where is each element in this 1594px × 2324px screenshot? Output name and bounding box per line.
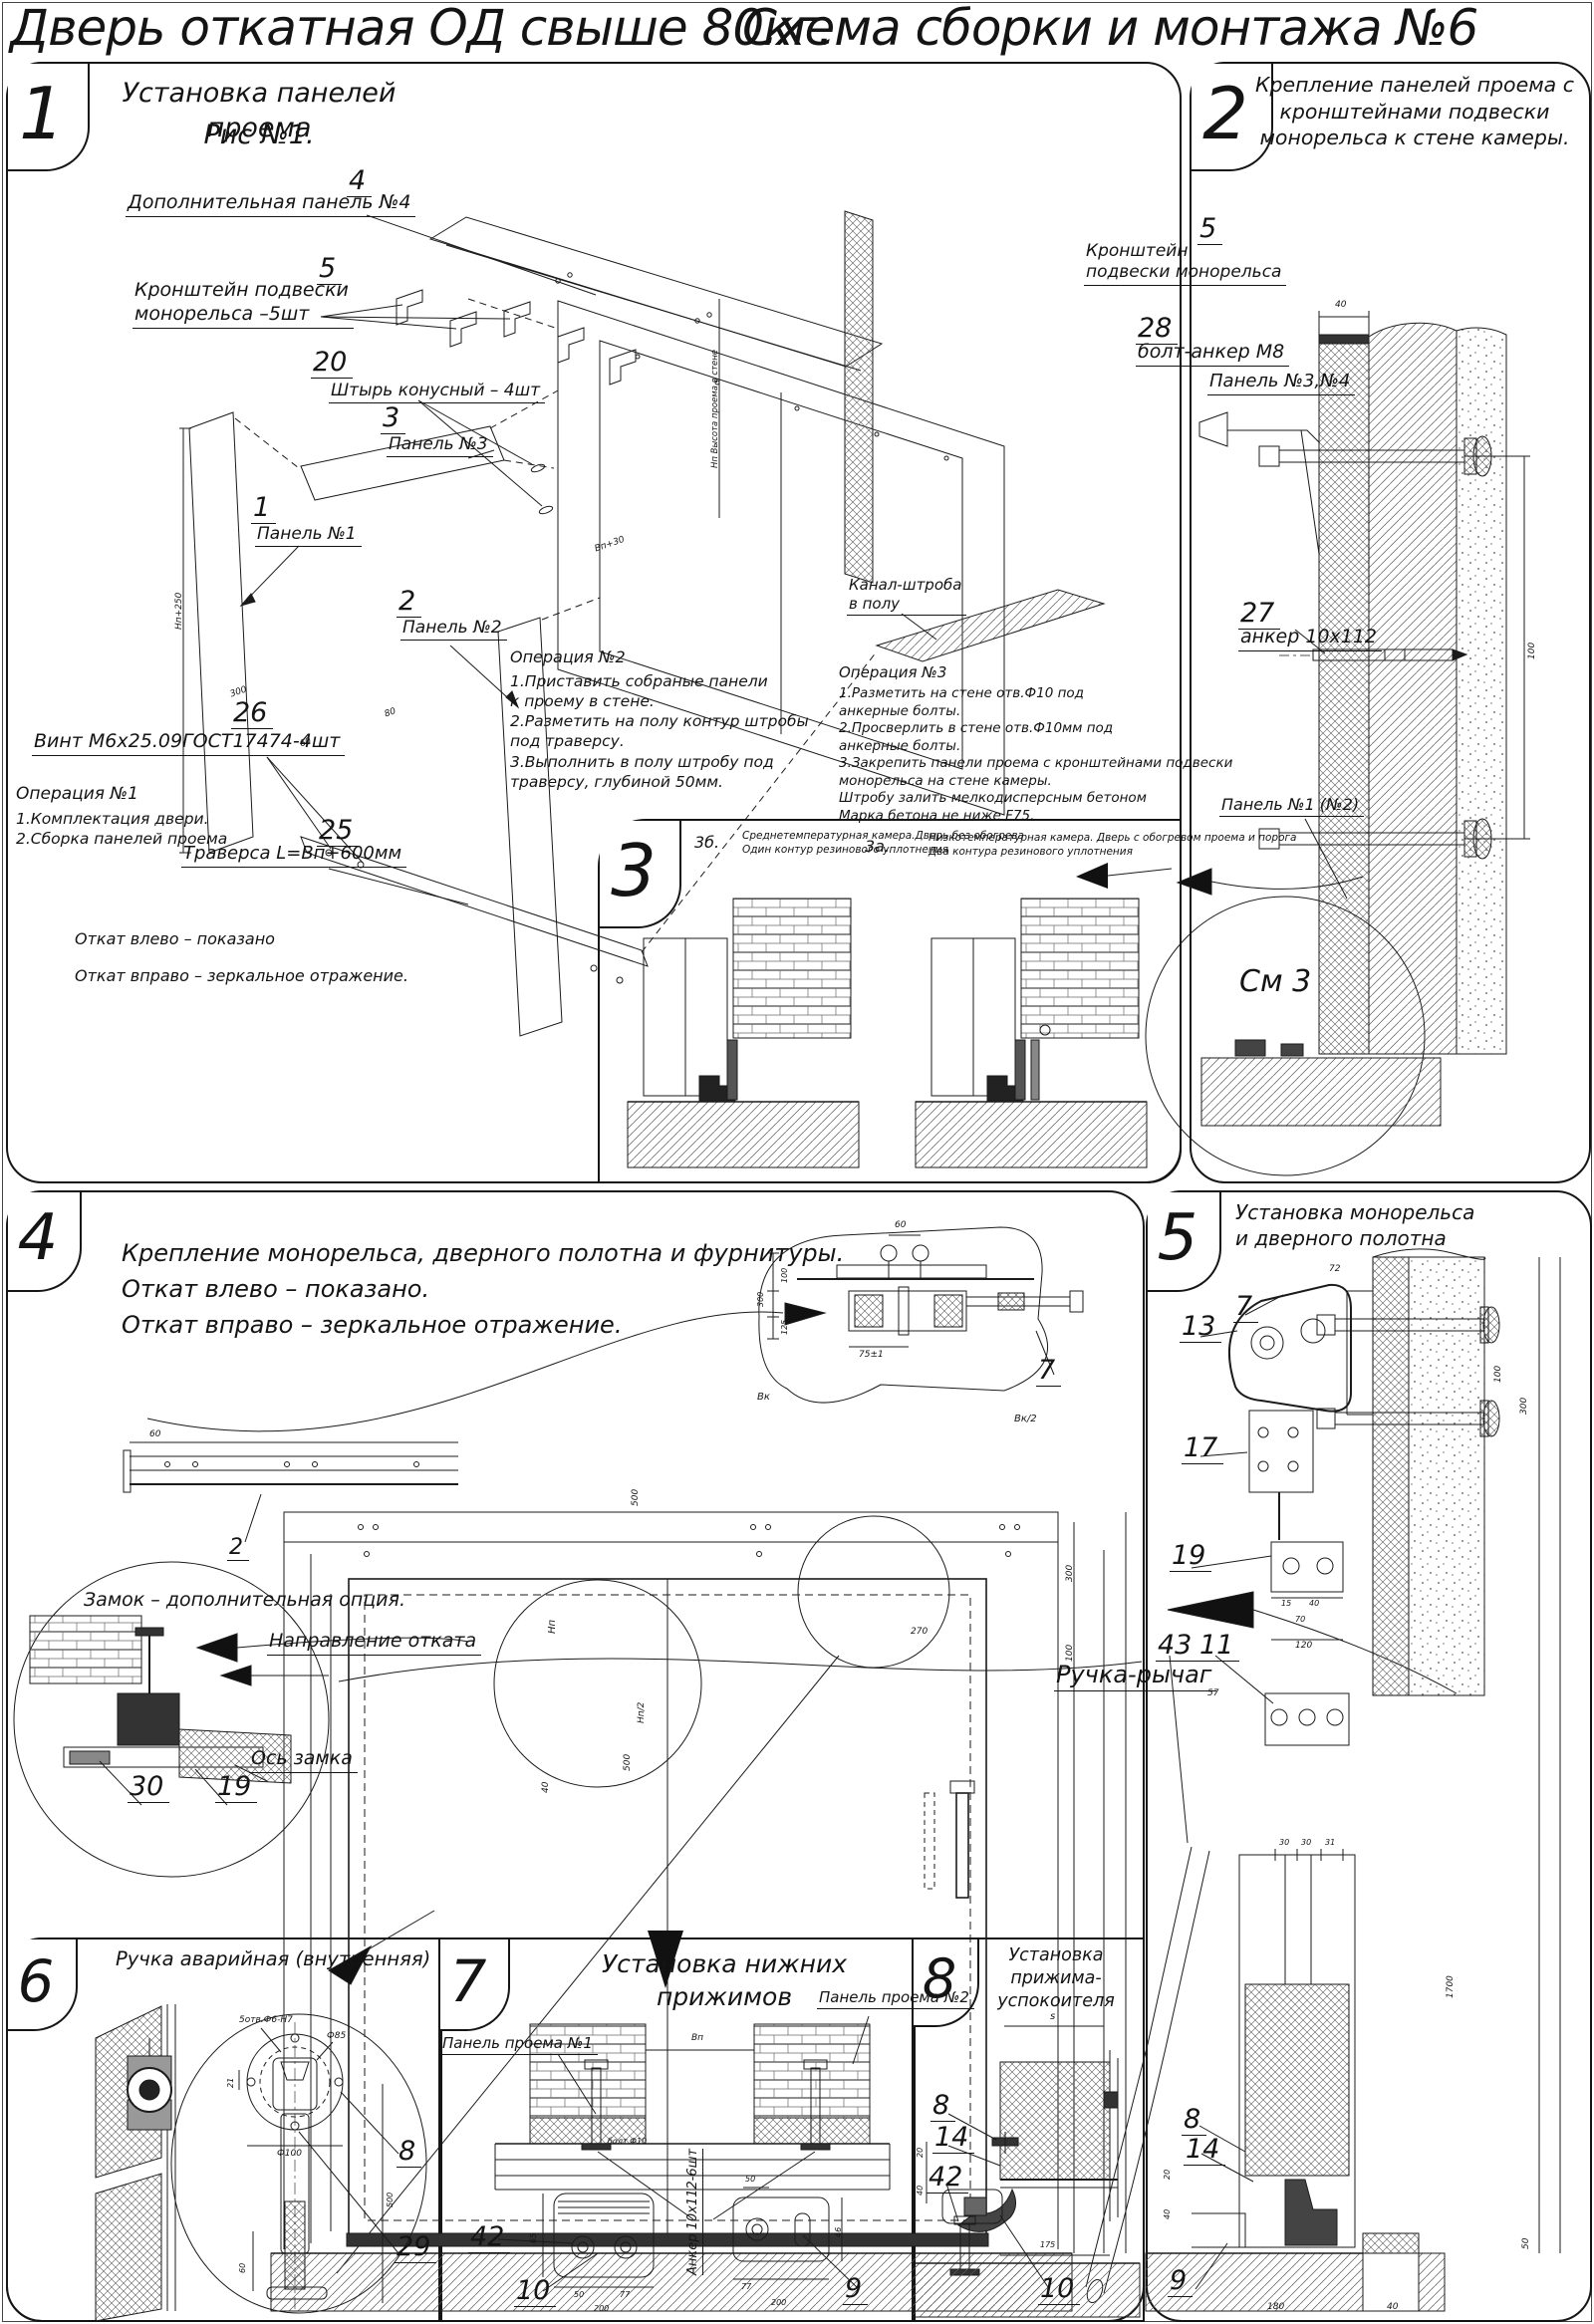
s4-dim-500b: 500 — [624, 1754, 633, 1771]
s7-dim-65: 65 — [530, 2233, 538, 2243]
s6-dim-21: 21 — [227, 2078, 235, 2088]
s7-dim-200a: 200 — [594, 2305, 609, 2313]
s4-dim-60: 60 — [895, 1221, 906, 1230]
s4-dim-75: 75±1 — [859, 1351, 884, 1360]
s6-callout-29-num: 29 — [395, 2233, 436, 2263]
s1-callout-3-num: 3 — [381, 404, 405, 434]
s3-arrow — [1076, 863, 1108, 889]
s5-dim-30b: 30 — [1301, 1839, 1311, 1847]
s7-callout-42-num: 42 — [468, 2223, 510, 2253]
s5-dim-300: 300 — [1520, 1398, 1529, 1415]
s6-dim-otv: 5отв.Ф6-Н7 — [239, 2016, 293, 2025]
s6-title: Ручка аварийная (внутренняя) — [116, 1946, 430, 1971]
s8-callout-14-num: 14 — [932, 2124, 974, 2154]
s1-callout-20-num: 20 — [311, 349, 353, 379]
s4-dim-125: 125 — [781, 1320, 789, 1335]
s4-lock-axis-label: Ось замка — [249, 1747, 358, 1773]
s6-dim-60: 60 — [239, 2263, 247, 2273]
s1-callout-kanal-label: Канал-штроба в полу — [847, 576, 966, 616]
s4-slide-direction-label: Направление отката — [267, 1630, 481, 1656]
s5-callout-43-num: 43 — [1156, 1632, 1197, 1662]
s5-dim-40b: 40 — [1164, 2209, 1172, 2219]
s5-lever-handle-label: Ручка-рычаг — [1054, 1660, 1216, 1691]
s1-callout-26-num: 26 — [231, 699, 273, 729]
s5-dim-180: 180 — [1267, 2303, 1284, 2312]
s5-dim-57: 57 — [1207, 1689, 1218, 1698]
s8-dim-40: 40 — [917, 2186, 925, 2195]
s2-callout-panel34-label: Панель №3,№4 — [1207, 371, 1355, 395]
s2-callout-27-label: анкер 10х112 — [1238, 626, 1382, 651]
s1-note2: Откат вправо – зеркальное отражение. — [75, 966, 408, 987]
s8-dim-s: s — [1050, 2012, 1055, 2022]
s5-dim-31: 31 — [1325, 1839, 1335, 1847]
s5-dim-120: 120 — [1295, 1642, 1312, 1651]
s5-dim-40a: 40 — [1309, 1600, 1319, 1608]
s5-callout-9-num: 9 — [1168, 2267, 1193, 2297]
s4-callout-19-num: 19 — [215, 1773, 257, 1803]
s1-dim-hp-note: Нп Высота проема в стене — [711, 350, 720, 468]
s3-detail-a — [916, 899, 1147, 1167]
s5-callout-19-num: 19 — [1170, 1542, 1211, 1572]
s4-callout-7-num: 7 — [1036, 1357, 1061, 1387]
s1-isometric-drawing — [179, 211, 1104, 1036]
s4-dim-bk: Вк — [757, 1393, 770, 1403]
s6-dim-f100: Ф100 — [277, 2150, 302, 2159]
s1-note1: Откат влево – показано — [75, 929, 275, 950]
s2-see3-label: См 3 — [1239, 962, 1311, 1001]
s7-dim-50b: 50 — [745, 2176, 755, 2184]
s8-title: Установка прижима-успокоителя — [976, 1944, 1136, 2012]
s5-dim-70: 70 — [1295, 1616, 1305, 1624]
s1-op2-title: Операция №2 — [510, 647, 626, 668]
s5-callout-13-num: 13 — [1180, 1313, 1221, 1343]
s1-callout-1-label: Панель №1 — [255, 524, 362, 547]
s4-dim-bk2: Вк/2 — [1014, 1415, 1037, 1424]
s1-callout-3-label: Панель №3 — [387, 434, 493, 457]
s5-callout-17-num: 17 — [1182, 1434, 1223, 1464]
s4-dim-60m: 60 — [149, 1430, 160, 1439]
drawing-sheet: Дверь откатная ОД свыше 80кг. Схема сбор… — [0, 0, 1594, 2324]
s5-dim-40c: 40 — [1387, 2303, 1398, 2312]
s5-wall-drawing — [1084, 1249, 1560, 2311]
s6-dim-f85: Ф85 — [327, 2032, 346, 2041]
s5-dim-50: 50 — [1522, 2238, 1531, 2249]
s1-op1-text: 1.Комплектация двери. 2.Сборка панелей п… — [16, 809, 227, 849]
s1-callout-2-label: Панель №2 — [400, 618, 507, 641]
s3-key-b: 3б. — [694, 833, 719, 854]
s4-monorail-drawing — [124, 1442, 458, 1542]
s6-callout-8-num: 8 — [397, 2138, 421, 2168]
s2-dim-40: 40 — [1335, 301, 1346, 310]
s5-dim-30a: 30 — [1279, 1839, 1289, 1847]
s4-dim-np: Нп — [548, 1620, 558, 1634]
s1-dim-hp: Нп+250 — [175, 593, 184, 630]
s4-callout-2-num: 2 — [227, 1536, 249, 1561]
s1-callout-2-num: 2 — [397, 588, 421, 618]
s5-dim-15: 15 — [1281, 1600, 1291, 1608]
s5-callout-8-num: 8 — [1182, 2106, 1206, 2136]
s4-callout-30-num: 30 — [128, 1773, 169, 1803]
s5-title: Установка монорельса и дверного полотна — [1235, 1199, 1474, 1251]
s5-dim-1700: 1700 — [1447, 1975, 1456, 1998]
s7-panel2-label: Панель проема №2 — [817, 1988, 974, 2009]
s5-callout-7-num: 7 — [1233, 1293, 1258, 1323]
s1-callout-5-label: Кронштейн подвески монорельса –5шт — [133, 279, 354, 329]
s4-dim-300b: 300 — [1066, 1565, 1075, 1582]
s5-dim-20: 20 — [1164, 2170, 1172, 2180]
s8-dim-175: 175 — [1040, 2241, 1055, 2249]
s3-detail-b — [628, 899, 859, 1167]
s1-op1-title: Операция №1 — [16, 783, 138, 805]
s4-dim-300: 300 — [757, 1292, 765, 1307]
s7-dim-200b: 200 — [771, 2299, 786, 2307]
s7-callout-10-num: 10 — [514, 2277, 556, 2307]
s5-dim-72: 72 — [1329, 1265, 1340, 1274]
s7-callout-9-num: 9 — [843, 2275, 868, 2305]
s1-callout-1-num: 1 — [251, 494, 276, 524]
s7-panel1-label: Панель проема №1 — [440, 2034, 598, 2055]
s1-op3-text: 1.Разметить на стене отв.Ф10 под анкерны… — [839, 685, 1232, 825]
s5-callout-14-num: 14 — [1184, 2136, 1225, 2166]
s7-dim-46: 46 — [835, 2227, 843, 2237]
s2-callout-5-label: Кронштейн подвески монорельса — [1084, 241, 1286, 286]
s4-dim-40: 40 — [542, 1782, 551, 1793]
s2-title: Крепление панелей проема с кронштейнами … — [1250, 72, 1579, 151]
s5-callout-11-num: 11 — [1197, 1632, 1239, 1662]
s7-dim-77a: 77 — [620, 2291, 630, 2299]
s4-title: Крепление монорельса, дверного полотна и… — [122, 1235, 844, 1343]
s8-callout-42-num: 42 — [927, 2164, 968, 2194]
s1-callout-4-label: Дополнительная панель №4 — [126, 191, 415, 217]
s7-dim-50a: 50 — [574, 2291, 584, 2299]
s1-callout-26-label: Винт М6х25.09ГОСТ17474-4шт — [32, 730, 345, 756]
s4-dim-270: 270 — [911, 1628, 928, 1637]
s4-lock-option-label: Замок – дополнительная опция. — [84, 1588, 405, 1613]
s7-anchor-note: Анкер 10х112-6шт — [685, 2149, 703, 2275]
s4-dim-500: 500 — [632, 1489, 641, 1506]
s2-callout-panel12-label: Панель №1 (№2) — [1219, 795, 1364, 817]
s3-text-a: Низкотемпературная камера. Дверь с обогр… — [929, 831, 1296, 859]
s6-dim-500: 500 — [387, 2193, 395, 2207]
s2-dim-100: 100 — [1528, 643, 1537, 659]
s8-callout-10-num: 10 — [1038, 2275, 1080, 2305]
s1-op3-title: Операция №3 — [839, 663, 946, 683]
s4-dim-100: 100 — [781, 1268, 789, 1283]
s1-callout-20-label: Штырь конусный – 4шт — [329, 381, 545, 403]
s1-op2-text: 1.Приставить собраные панели к проему в … — [510, 671, 809, 792]
s7-dim-bolt: болт Ф10 — [608, 2138, 647, 2146]
s7-dim-77b: 77 — [741, 2283, 751, 2291]
s4-dim-np2: Нп/2 — [638, 1702, 647, 1723]
s8-dim-20: 20 — [917, 2148, 925, 2158]
s5-dim-100: 100 — [1494, 1366, 1503, 1383]
s3-key-a: 3а. — [865, 837, 890, 858]
s1-subtitle: Рис №1. — [95, 118, 423, 152]
s7-dim-bp: Вп — [691, 2034, 703, 2043]
s2-callout-28-label: болт-анкер М8 — [1136, 341, 1289, 367]
s8-callout-8-num: 8 — [930, 2092, 955, 2122]
